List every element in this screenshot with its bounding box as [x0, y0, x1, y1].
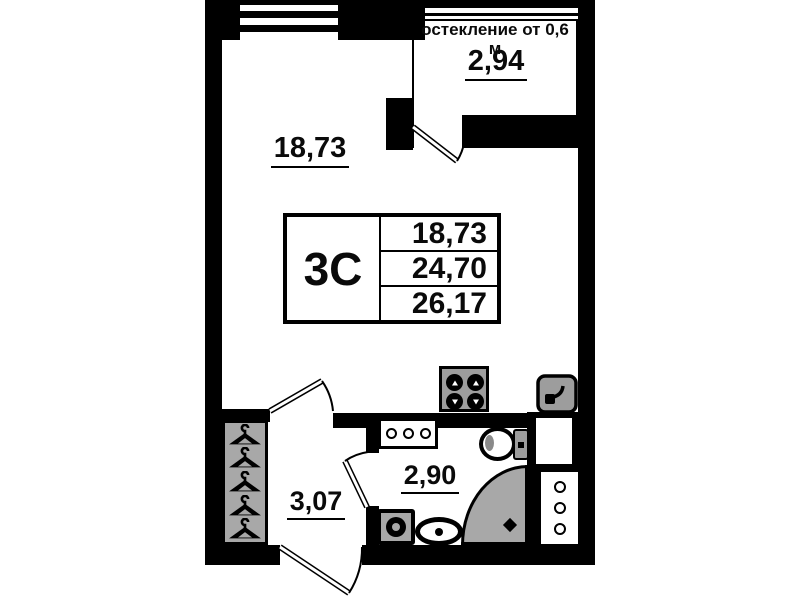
- unit-info-table: 3С 18,73 24,70 26,17: [283, 213, 501, 324]
- balcony-area-label: 2,94: [460, 46, 532, 81]
- stove-burner-icon: [446, 374, 463, 391]
- wall-niche: [536, 418, 572, 464]
- vanity-holes-icon: [386, 428, 397, 439]
- hanger-icon: [226, 424, 264, 447]
- stove-burner-icon: [467, 374, 484, 391]
- unit-area-row: 18,73: [380, 216, 498, 251]
- ventilation-shaft: [541, 472, 578, 544]
- washing-machine-icon: [377, 509, 415, 545]
- floor-plan: остекление от 0,6 м 2,94 18,73 3,07 2,90…: [0, 0, 799, 600]
- shower-drain-icon: [503, 518, 517, 532]
- stove-icon: [439, 366, 489, 412]
- living-room-area-label: 18,73: [268, 133, 352, 168]
- toilet-tank-icon: [513, 429, 529, 460]
- shaft-vent-icon: [554, 502, 566, 514]
- unit-area-row: 24,70: [380, 251, 498, 286]
- shaft-vent-icon: [554, 481, 566, 493]
- shaft-vent-icon: [554, 523, 566, 535]
- balcony-door-icon: [413, 121, 465, 161]
- unit-area-row: 26,17: [380, 286, 498, 321]
- vanity-cabinet: [378, 418, 438, 449]
- bathroom-area-label: 2,90: [396, 461, 464, 494]
- entrance-door-icon: [280, 547, 362, 593]
- unit-type-cell: 3С: [286, 216, 380, 321]
- washbasin-icon: [415, 517, 463, 546]
- toilet-icon: [479, 427, 516, 461]
- vanity-holes-icon: [403, 428, 414, 439]
- hanger-icon: [226, 518, 264, 541]
- vanity-holes-icon: [420, 428, 431, 439]
- wardrobe: [222, 420, 268, 545]
- living-room-door-icon: [270, 381, 333, 411]
- washing-machine-drum-icon: [386, 517, 406, 537]
- stove-burner-icon: [467, 393, 484, 410]
- hanger-icon: [226, 495, 264, 518]
- hallway-area-label: 3,07: [282, 487, 350, 520]
- hanger-icon: [226, 447, 264, 470]
- stove-burner-icon: [446, 393, 463, 410]
- kitchen-sink-icon: [536, 374, 578, 414]
- hanger-icon: [226, 471, 264, 494]
